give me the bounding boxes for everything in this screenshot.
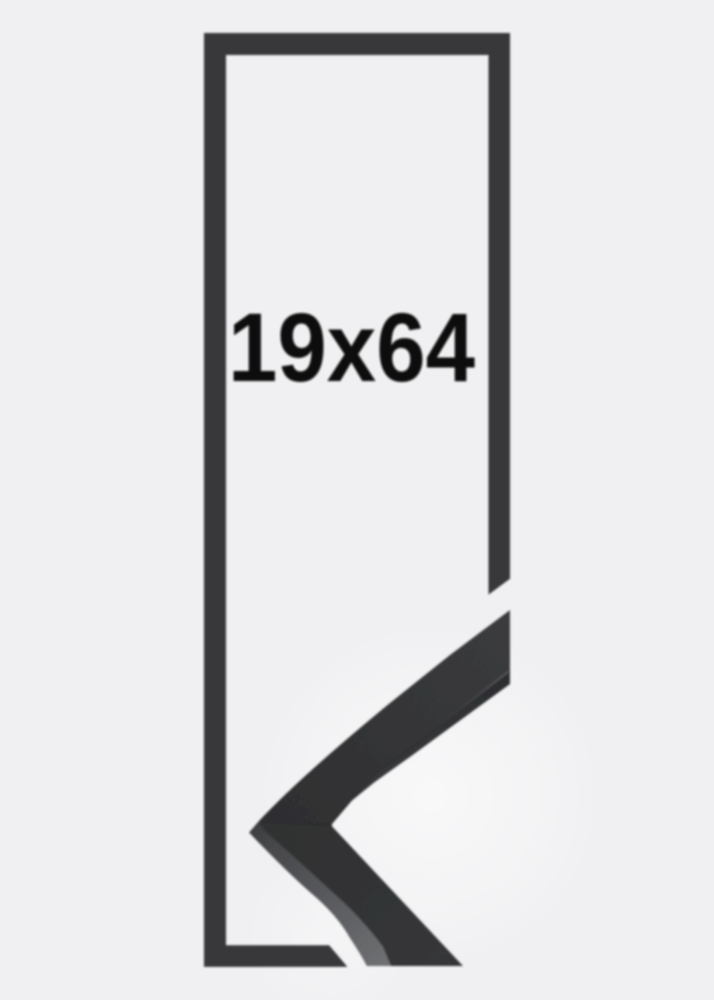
svg-text:19x64: 19x64 [228,293,475,402]
